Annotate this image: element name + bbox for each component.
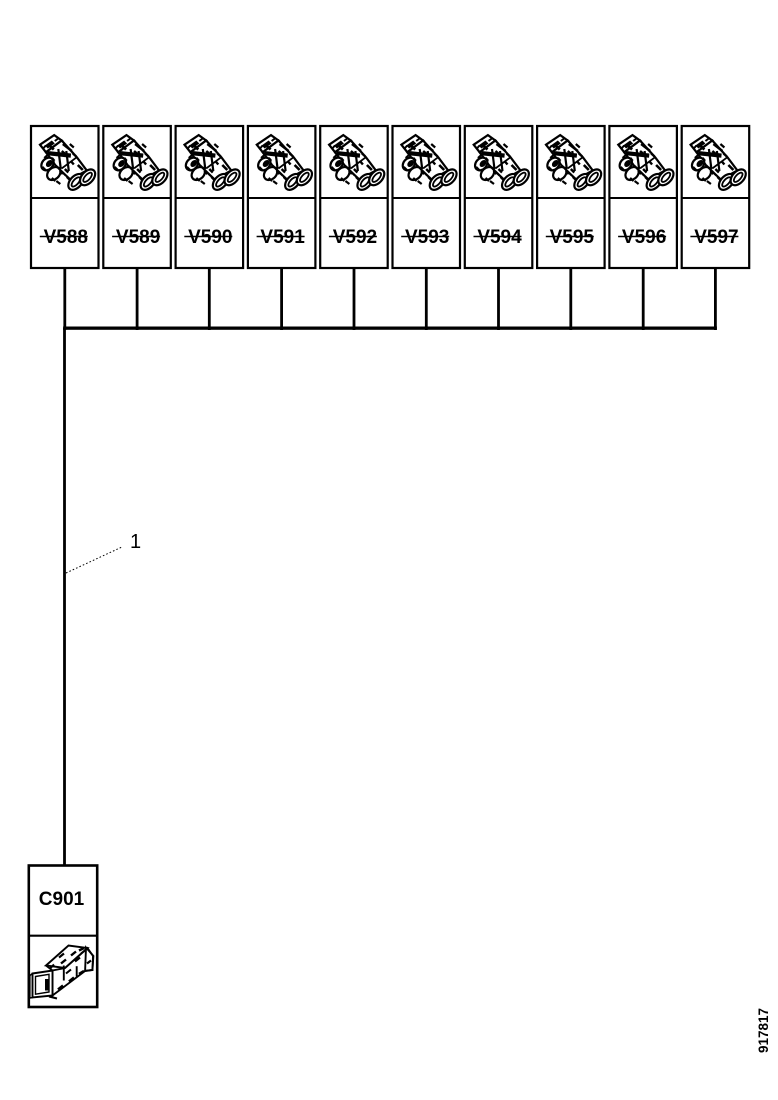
svg-text:1: 1 (130, 531, 141, 553)
svg-text:917817: 917817 (756, 1008, 771, 1053)
svg-text:V595: V595 (550, 227, 595, 248)
svg-text:C901: C901 (39, 889, 85, 910)
svg-text:V594: V594 (477, 227, 522, 248)
svg-text:V589: V589 (116, 227, 160, 248)
svg-text:V590: V590 (188, 227, 232, 248)
svg-text:V596: V596 (622, 227, 666, 248)
svg-text:V592: V592 (333, 227, 377, 248)
svg-text:V593: V593 (405, 227, 449, 248)
svg-text:V588: V588 (44, 227, 88, 248)
svg-text:V591: V591 (260, 227, 305, 248)
svg-text:V597: V597 (694, 227, 738, 248)
